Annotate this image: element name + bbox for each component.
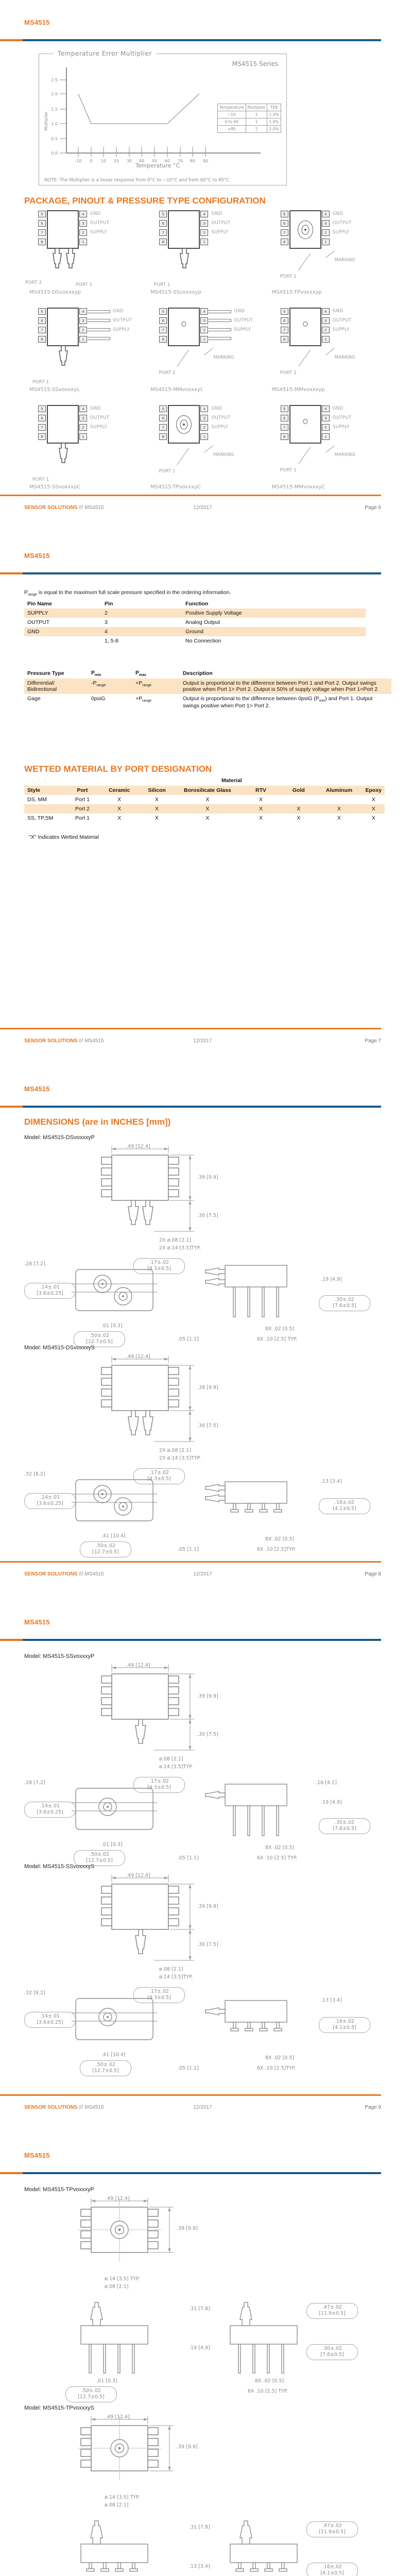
page-8: MS4515 DIMENSIONS (are in INCHES [mm]) M… (0, 1066, 412, 1600)
pin: 8 (159, 433, 167, 440)
dim-label: ø.08 [2.1] (159, 1967, 183, 1972)
pin: 3 (200, 317, 208, 324)
model-label: Model: MS4515-SSvoxxxyS (24, 1863, 395, 1870)
package-caption: MS4515-SSvoxxxyp (150, 290, 265, 295)
chart-note: NOTE: The Multiplier is a linear respons… (44, 178, 231, 183)
dim-label: ø.14 [3.5]TYP. (159, 1764, 193, 1770)
package-caption: MS4515-DSvoxxxyp (29, 290, 144, 295)
pin: 2 (322, 327, 330, 333)
dim-label: .50±.02 [12.7±0.5] (80, 2060, 131, 2076)
dim-label: .49 [12.4] (126, 1354, 150, 1360)
pins-left: 5 6 7 8 (38, 405, 46, 440)
pin: 7 (38, 327, 46, 333)
dim-label: .05 [1.1] (178, 1855, 199, 1861)
dim-label: 2X ø.14 [3.5]TYP. (159, 1245, 201, 1251)
page-footer: SENSOR SOLUTIONS /// MS4515 12/2017 Page… (24, 505, 381, 511)
pin: 2 (322, 229, 330, 236)
dim-label: .31 [7.8] (189, 2524, 210, 2530)
pin: 4 (79, 211, 87, 217)
svg-text:0: 0 (90, 159, 92, 163)
temperature-error-multiplier-chart: Temperature Error Multiplier MS4515 Seri… (39, 54, 287, 185)
package-body (168, 405, 200, 444)
pin: 4 (322, 211, 330, 217)
signal-label-supply: SUPPLY (333, 425, 352, 430)
signal-label-gnd: GND (113, 309, 132, 314)
pin: 4 (322, 308, 330, 315)
pin: 5 (281, 211, 288, 217)
pin: 4 (200, 211, 208, 217)
front-view: .49 [12.4] .39 [9.9] .30 [7.5] 2X ø.08 [… (24, 1354, 395, 1466)
package-diagram: 5 6 7 8 4 3 2 1 GND OUTPUT SUPPLY (145, 210, 265, 295)
signal-label-supply: SUPPLY (333, 230, 352, 235)
pin: 3 (200, 220, 208, 227)
svg-text:2.5: 2.5 (51, 78, 58, 82)
dim-label: .30±.02 [7.6±0.5] (319, 1295, 370, 1311)
dim-label: 6X .10 [2.5]TYP. (257, 2065, 296, 2071)
pins-left: 5 6 7 8 (38, 211, 46, 245)
pin: 1 (200, 433, 208, 440)
signal-label-output: OUTPUT (90, 221, 109, 226)
pin: 5 (38, 211, 46, 217)
dim-label: 6X .10 [2.5] TYP. (257, 1336, 297, 1342)
pin: 7 (159, 424, 167, 431)
x-axis-label: Temperature °C (101, 162, 214, 169)
signal-label-gnd: GND (211, 211, 230, 216)
pin: 3 (79, 317, 87, 324)
pin: 5 (38, 405, 46, 412)
pins-left: 5 6 7 8 (281, 308, 288, 343)
pin: 2 (322, 424, 330, 431)
signal-label-output: OUTPUT (90, 415, 109, 420)
page-footer: SENSOR SOLUTIONS /// MS4515 12/2017 Page… (24, 1571, 381, 1577)
pin: 7 (281, 327, 288, 333)
header-rule (0, 1106, 381, 1108)
dim-label: .05 [1.1] (178, 1547, 199, 1552)
signal-label-supply: SUPPLY (211, 425, 230, 430)
pin: 6 (159, 415, 167, 421)
pins-left: 5 6 7 8 (159, 211, 167, 245)
package-diagram: 5 6 7 8 4 3 2 1 GND OUTPUT SUPPLY (24, 405, 144, 490)
datasheet-document: MS4515 Temperature Error Multiplier MS45… (0, 0, 412, 2576)
top-port-rings (298, 221, 313, 239)
page-title: MS4515 (24, 1085, 50, 1093)
pin: 6 (281, 415, 288, 421)
pin: 7 (159, 327, 167, 333)
dim-label: 8X .02 [0.5] (265, 1326, 294, 1332)
dim-label: .13 [3.4] (321, 1479, 342, 1484)
package-body (47, 308, 79, 346)
signal-labels: GND OUTPUT SUPPLY (333, 211, 352, 235)
front-view: .49 [12.4] .39 [9.9] .30 [7.5] ø.08 [2.1… (24, 1873, 395, 1985)
dim-label: ø.14 [3.5] TYP. (105, 2495, 140, 2500)
dim-label: .41 [10.4] (101, 1533, 126, 1539)
svg-text:2.0: 2.0 (51, 92, 58, 96)
dim-label: .19 [4.9] (321, 1277, 342, 1282)
footer-rule (0, 1561, 381, 1563)
signal-label-supply: SUPPLY (333, 327, 352, 332)
pin: 2 (200, 327, 208, 333)
model-tpvoxxxys: Model: MS4515-TPvoxxxyS .49 [12.4] .39 [… (24, 2405, 395, 2576)
pin-table: Pin Name Pin Function SUPPLY2Positive Su… (24, 599, 366, 646)
side-views: .32 [8.2] .14±.01 [3.6±0.25] .17±.02 [4.… (24, 1468, 395, 1562)
pin: 2 (200, 229, 208, 236)
table-row: −1022.0% (218, 111, 281, 118)
pin: 3 (79, 415, 87, 421)
dim-label: ø.14 [3.5] TYP. (105, 2276, 140, 2282)
page-title: MS4515 (24, 552, 50, 560)
dim-label: .13 [3.4] (321, 1997, 342, 2003)
dim-label: .49 [12.4] (126, 1873, 150, 1878)
pins-right: 4 3 2 1 (322, 211, 330, 245)
port-label: PORT 1 (280, 274, 297, 279)
signal-labels: GND OUTPUT SUPPLY (333, 406, 352, 430)
header-rule (0, 572, 381, 574)
top-view: .49 [12.4] .39 [9.9] (24, 2196, 395, 2274)
svg-text:0.5: 0.5 (51, 137, 58, 141)
footer-rule (0, 1028, 381, 1029)
pin: 8 (38, 336, 46, 343)
dim-label: 2X ø.08 [2.1] (159, 1238, 191, 1243)
page-footer: SENSOR SOLUTIONS /// MS4515 12/2017 Page… (24, 2105, 381, 2110)
dim-label: .05 [1.1] (178, 1336, 199, 1342)
table-row: SUPPLY2Positive Supply Voltage (24, 608, 366, 618)
multiplier-curve (78, 94, 199, 124)
pin: 4 (79, 308, 87, 315)
signal-labels: GND OUTPUT SUPPLY (333, 309, 352, 332)
table-row: 0 to 6011.0% (218, 118, 281, 126)
model-label: Model: MS4515-TPvoxxxyS (24, 2405, 395, 2411)
package-body (47, 210, 79, 249)
signal-label-gnd: GND (234, 309, 253, 314)
dim-label: .30 [7.5] (197, 1213, 218, 1218)
pin: 7 (159, 229, 167, 236)
dim-label: .05 [1.1] (178, 2065, 199, 2071)
side-views: .32 [8.2] .14±.01 [3.6±0.25] .17±.02 [4.… (24, 1987, 395, 2081)
pin: 6 (38, 317, 46, 324)
signal-label-supply: SUPPLY (234, 327, 253, 332)
pins-right: 4 3 2 1 (322, 405, 330, 440)
pin: 4 (322, 405, 330, 412)
pins-right: 4 3 2 1 (200, 405, 208, 440)
pins-right: 4 3 2 1 (79, 405, 87, 440)
side-views: ø.14 [3.5] TYP. ø.08 [2.1] .31 [7.8] .47… (24, 2495, 395, 2576)
material-group-label: Material (154, 777, 309, 784)
header-rule (0, 1639, 381, 1641)
dim-label: .30 [7.5] (197, 1732, 218, 1737)
dim-label: .39 [9.9] (197, 1693, 218, 1699)
port-label: PORT 1 (153, 282, 170, 287)
pin: 7 (281, 424, 288, 431)
signal-labels: GND OUTPUT SUPPLY (211, 406, 230, 430)
package-diagram: 5 6 7 8 4 3 2 1 GND OUTPUT SUPPLY (145, 308, 265, 393)
package-diagram: 5 6 7 8 4 3 2 1 GND OUTPUT SUPPLY (24, 308, 144, 393)
model-label: Model: MS4515-DSvoxxxyP (24, 1134, 395, 1141)
dim-label: .39 [9.9] (197, 1175, 218, 1180)
wetted-note: "X" Indicates Wetted Material (29, 834, 99, 840)
port-hole (182, 321, 186, 327)
model-ssvoxxxys: Model: MS4515-SSvoxxxyS .49 [12.4] .39 [… (24, 1863, 395, 2081)
top-view: .49 [12.4] .39 [9.9] (24, 2414, 395, 2493)
pin: 8 (281, 433, 288, 440)
dim-label: .49 [12.4] (126, 1663, 150, 1668)
signal-label-gnd: GND (333, 406, 352, 411)
signal-label-output: OUTPUT (333, 221, 352, 226)
dim-label: .14±.01 [3.6±0.25] (24, 2012, 76, 2028)
page-title: MS4515 (24, 19, 50, 26)
port-label: PORT 1 (32, 380, 49, 385)
pin: 5 (281, 405, 288, 412)
front-view: .49 [12.4] .39 [9.9] .30 [7.5] 2X ø.08 [… (24, 1144, 395, 1256)
svg-text:-10: -10 (75, 159, 81, 163)
signal-labels: GND OUTPUT SUPPLY (90, 406, 109, 430)
dim-label: .14±.01 [3.6±0.25] (24, 1283, 76, 1299)
signal-label-output: OUTPUT (211, 415, 230, 420)
package-grid: 5 6 7 8 4 3 2 1 GND OUTPUT SUPPLY (24, 210, 388, 490)
model-dsvoxxxys: Model: MS4515-DSvoxxxyS .49 [12.4] .39 [… (24, 1345, 395, 1562)
pin: 6 (159, 220, 167, 227)
pin: 1 (200, 336, 208, 343)
signal-label-output: OUTPUT (333, 415, 352, 420)
dim-label: .14±.01 [3.6±0.25] (24, 1802, 76, 1818)
port-label: PORT 1 (32, 477, 49, 482)
dim-label: 8X .02 [0.5] (265, 1536, 294, 1542)
dim-label: .17±.02 [4.3±0.5] (133, 1258, 185, 1274)
dim-label: .14±.01 [3.6±0.25] (24, 1493, 76, 1509)
package-caption: MS4515-SSvoxxxyL (29, 387, 144, 393)
pin: 3 (322, 220, 330, 227)
pin: 2 (79, 424, 87, 431)
page-9: MS4515 Model: MS4515-SSvoxxxyP .49 [12.4… (0, 1600, 412, 2133)
dim-label: .50±.02 [12.7±0.5] (80, 1541, 131, 1557)
dim-label: 2X ø.14 [3.5]TYP. (159, 1455, 201, 1461)
front-view: .49 [12.4] .39 [9.9] .30 [7.5] ø.08 [2.1… (24, 1663, 395, 1775)
dim-label: .39 [9.9] (197, 1904, 218, 1909)
pins-left: 5 6 7 8 (281, 405, 288, 440)
prange-note: Prange is equal to the maximum full scal… (24, 589, 231, 597)
gull-wing-leads (88, 310, 110, 340)
pin: 4 (200, 308, 208, 315)
pressure-type-table: Pressure Type Pmin Pmax Description Diff… (24, 668, 391, 710)
svg-text:1.5: 1.5 (51, 107, 58, 112)
package-diagram: 5 6 7 8 4 3 2 1 GND OUTPUT SUPPLY (267, 210, 387, 295)
gull-wing-leads (209, 310, 231, 340)
package-diagram: 5 6 7 8 4 3 2 1 GND OUTPUT SUPPLY (145, 405, 265, 490)
dim-label: .28 [7.2] (24, 1261, 45, 1267)
pins-right: 4 3 2 1 (322, 308, 330, 343)
model-label: Model: MS4515-DSvoxxxyS (24, 1345, 395, 1351)
page-6: MS4515 Temperature Error Multiplier MS45… (0, 0, 412, 533)
pin: 5 (159, 405, 167, 412)
pin: 3 (200, 415, 208, 421)
dim-label: .01 [0.3] (101, 1842, 123, 1848)
brand: SENSOR SOLUTIONS (24, 505, 77, 511)
pins-right: 4 3 2 1 (200, 211, 208, 245)
dim-label: .17±.02 [4.3±0.5] (133, 1777, 185, 1793)
table-row: 1, 5-8No Connection (24, 636, 366, 646)
dim-label: .17±.02 [4.3±0.5] (133, 1987, 185, 2003)
port-hole (303, 419, 307, 424)
pin: 1 (322, 433, 330, 440)
port-label: PORT 1 (76, 282, 92, 287)
port-hole (303, 321, 307, 327)
pins-left: 5 6 7 8 (159, 308, 167, 343)
signal-labels: GND OUTPUT SUPPLY (234, 309, 253, 332)
dim-label: ø.08 [2.1] (105, 2502, 128, 2508)
page-10: MS4515 Model: MS4515-TPvoxxxyP .49 [12.4… (0, 2133, 412, 2576)
pin: 8 (38, 239, 46, 245)
pin: 5 (159, 211, 167, 217)
dim-label: .30±.02 [7.6±0.5] (306, 2344, 358, 2360)
package-diagram: 5 6 7 8 4 3 2 1 GND OUTPUT SUPPLY (24, 210, 144, 295)
package-diagram: 5 6 7 8 4 3 2 1 GND OUTPUT SUPPLY (267, 405, 387, 490)
dim-label: .32 [8.2] (24, 1471, 45, 1477)
dim-label: .30 [7.5] (197, 1942, 218, 1947)
dim-label: ø.08 [2.1] (159, 1756, 183, 1762)
table-row: Gage 0psiG +Prange Output is proportiona… (24, 694, 391, 710)
port-label: PORT 2 (280, 370, 297, 376)
signal-label-output: OUTPUT (211, 221, 230, 226)
pin: 3 (79, 220, 87, 227)
pin: 1 (200, 239, 208, 245)
footer-rule (0, 495, 381, 496)
package-diagram: 5 6 7 8 4 3 2 1 GND OUTPUT SUPPLY (267, 308, 387, 393)
package-body (289, 405, 321, 444)
dim-label: 2X ø.08 [2.1] (159, 1448, 191, 1453)
dim-label: ø.08 [2.1] (105, 2284, 128, 2290)
pin: 7 (38, 229, 46, 236)
package-body (47, 405, 79, 444)
model-label: Model: MS4515-TPvoxxxyP (24, 2187, 395, 2193)
pins-left: 5 6 7 8 (159, 405, 167, 440)
model-dsvoxxxyp: Model: MS4515-DSvoxxxyP .49 [12.4] .39 [… (24, 1134, 395, 1352)
dim-label: ø.14 [3.5]TYP. (159, 1974, 193, 1980)
side-views: .28 [7.2] .14±.01 [3.6±0.25] .17±.02 [4.… (24, 1258, 395, 1352)
package-caption: MS4515-SSvoxxxyC (29, 484, 144, 490)
pin: 6 (281, 220, 288, 227)
pin: 1 (79, 239, 87, 245)
table-row: Port 2XXXXXXX (24, 804, 385, 814)
side-views: ø.14 [3.5] TYP. ø.08 [2.1] .31 [7.8] .47… (24, 2276, 395, 2409)
dim-label: .16±.02 [4.1±0.5] (319, 1498, 370, 1514)
pin: 6 (159, 317, 167, 324)
page-title: MS4515 (24, 1618, 50, 1626)
dim-label: 6X .10 [2.5] TYP. (248, 2388, 288, 2394)
signal-label-supply: SUPPLY (90, 425, 109, 430)
port-label: PORT 2 (159, 370, 175, 376)
footer-page-number: Page 6 (262, 505, 381, 511)
package-caption: MS4515-MMvoxxxyL (150, 387, 265, 393)
pin: 2 (200, 424, 208, 431)
pins-right: 4 3 2 1 (79, 211, 87, 245)
page-title: MS4515 (24, 2151, 50, 2159)
dim-label: 6X .10 [2.5] TYP. (257, 1855, 297, 1861)
wetted-material-table: Style Port Ceramic Silicon Borosilicate … (24, 786, 385, 823)
package-caption: MS4515-TPvoxxxyp (272, 290, 387, 295)
dim-label: .30±.02 [7.6±0.5] (319, 1818, 370, 1834)
pin: 6 (38, 415, 46, 421)
pin: 5 (38, 308, 46, 315)
pins-right: 4 3 2 1 (200, 308, 208, 343)
footer-rule (0, 2094, 381, 2096)
page-7: MS4515 Prange is equal to the maximum fu… (0, 533, 412, 1066)
section-heading-package: PACKAGE, PINOUT & PRESSURE TYPE CONFIGUR… (24, 196, 266, 206)
page-footer: SENSOR SOLUTIONS /// MS4515 12/2017 Page… (24, 1038, 381, 1044)
signal-label-gnd: GND (90, 211, 109, 216)
dim-label: .13 [3.4] (189, 2564, 210, 2569)
pin: 1 (322, 336, 330, 343)
dim-label: .49 [12.4] (106, 2196, 130, 2201)
signal-label-gnd: GND (333, 211, 352, 216)
pin: 4 (200, 405, 208, 412)
section-heading-dimensions: DIMENSIONS (are in INCHES [mm]) (24, 1117, 170, 1127)
signal-label-output: OUTPUT (333, 318, 352, 323)
pin: 1 (79, 433, 87, 440)
port-label: PORT 1 (280, 468, 297, 473)
footer-date: 12/2017 (143, 505, 262, 511)
signal-labels: GND OUTPUT SUPPLY (211, 211, 230, 235)
dim-label: .16 [4.1] (316, 1780, 337, 1786)
dim-label: .39 [9.9] (177, 2226, 198, 2231)
dim-label: 6X .10 [2.5]TYP. (257, 1547, 296, 1552)
dim-label: .47±.02 [11.9±0.5] (306, 2521, 358, 2537)
pin: 2 (79, 229, 87, 236)
pin: 1 (79, 336, 87, 343)
pin: 6 (281, 317, 288, 324)
signal-label-gnd: GND (211, 406, 230, 411)
signal-label-gnd: GND (333, 309, 352, 314)
pin: 3 (322, 317, 330, 324)
package-body (289, 210, 321, 249)
dim-label: 8X .02 [0.5] (255, 2378, 284, 2384)
header-rule (0, 39, 381, 41)
dim-label: .01 [0.3] (96, 2378, 117, 2384)
pin: 5 (281, 308, 288, 315)
table-row: +8522.0% (218, 126, 281, 133)
dim-label: 8X .02 [0.5] (265, 1845, 294, 1851)
port-label: PORT 1 (159, 469, 175, 474)
dim-label: .28 [7.2] (24, 1780, 45, 1786)
section-heading-wetted: WETTED MATERIAL BY PORT DESIGNATION (24, 764, 212, 774)
svg-text:0.0: 0.0 (51, 151, 58, 156)
pin: 5 (159, 308, 167, 315)
pin: 8 (38, 433, 46, 440)
signal-label-supply: SUPPLY (211, 230, 230, 235)
dim-label: 8X .02 [0.5] (265, 2055, 294, 2061)
package-caption: MS4515-MMvoxxxyp (272, 387, 387, 393)
chart-table: Temperature Multiplier TEB −1022.0% 0 to… (217, 104, 281, 133)
pin: 3 (322, 415, 330, 421)
signal-label-supply: SUPPLY (113, 327, 132, 332)
dim-label: .32 [8.2] (24, 1990, 45, 1996)
pin: 8 (159, 239, 167, 245)
pin: 7 (281, 229, 288, 236)
dim-label: .16±.02 [4.1±0.5] (306, 2563, 358, 2576)
pin: 7 (38, 424, 46, 431)
pin: 8 (281, 239, 288, 245)
pin: 8 (159, 336, 167, 343)
table-row: Differential/ Bidirectional -Prange +Pra… (24, 679, 391, 694)
dim-label: .39 [9.9] (197, 1385, 218, 1391)
dim-label: .47±.02 [11.9±0.5] (306, 2303, 358, 2319)
pin: 2 (79, 327, 87, 333)
dim-label: .30 [7.5] (197, 1423, 218, 1429)
dim-label: .39 [9.9] (177, 2444, 198, 2450)
table-row: GND4Ground (24, 627, 366, 636)
signal-label-gnd: GND (90, 406, 109, 411)
top-port-rings (176, 415, 192, 434)
model-tpvoxxxyp: Model: MS4515-TPvoxxxyP .49 [12.4] .39 [… (24, 2187, 395, 2409)
dim-label: .01 [0.3] (101, 1323, 123, 1329)
